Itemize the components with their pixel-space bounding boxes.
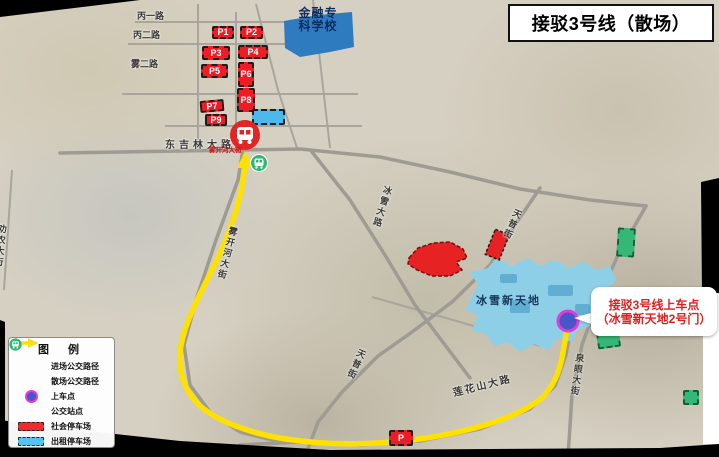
bus-stop-icon bbox=[250, 154, 268, 172]
page-title: 接驳3号线（散场） bbox=[508, 4, 714, 42]
legend-label: 进场公交路径 bbox=[51, 361, 99, 372]
road-wukaihe bbox=[184, 125, 285, 443]
blue-dashed-box-icon bbox=[15, 437, 47, 446]
legend-item-enter-route: 进场公交路径 bbox=[15, 359, 110, 373]
legend-item-taxi-parking: 出租停车场 bbox=[15, 434, 110, 448]
parking-p1: P1 bbox=[212, 26, 234, 39]
legend-label: 散场公交路径 bbox=[51, 376, 99, 387]
parking-p6: P6 bbox=[238, 62, 254, 87]
boarding-dot-icon bbox=[15, 390, 47, 403]
legend-label: 上车点 bbox=[51, 391, 75, 402]
social-parking-area bbox=[408, 242, 467, 276]
legend-item-social-parking: 社会停车场 bbox=[15, 419, 110, 433]
school-label: 金融专 科学校 bbox=[288, 7, 348, 33]
road-label-bingyi: 丙一路 bbox=[137, 9, 164, 22]
green-lot-east bbox=[616, 227, 636, 257]
parking-p-south: P bbox=[389, 430, 413, 446]
bus-stop-name: 雾开河大街 bbox=[209, 144, 242, 154]
parking-p3: P3 bbox=[202, 46, 230, 60]
road-dongjilin bbox=[60, 149, 646, 206]
school-label-line2: 科学校 bbox=[288, 20, 348, 33]
parking-p7: P7 bbox=[200, 99, 225, 113]
legend-label: 出租停车场 bbox=[51, 436, 91, 447]
legend-item-boarding: 上车点 bbox=[15, 389, 110, 403]
road-label-wuer: 雾二路 bbox=[131, 57, 158, 70]
parking-p9: P9 bbox=[205, 114, 227, 126]
legend-item-exit-route: 散场公交路径 bbox=[15, 374, 110, 388]
parking-p5: P5 bbox=[201, 64, 228, 78]
legend-label: 公交站点 bbox=[51, 406, 83, 417]
shuttle-map-page: 丙一路 丙二路 雾二路 东吉林大路 雾开河大街 冰雪大路 天普街 天普街 泉眼大… bbox=[0, 0, 719, 457]
legend-item-bus-stop: 公交站点 bbox=[15, 404, 110, 418]
road-label-binger: 丙二路 bbox=[133, 28, 160, 41]
boarding-callout: 接驳3号线上车点 （冰雪新天地2号门） bbox=[591, 287, 717, 336]
callout-line2: （冰雪新天地2号门） bbox=[597, 312, 712, 326]
legend: 图 例 进场公交路径 散场公交路径 上车点 公交站点 社会停车场 bbox=[8, 337, 115, 448]
green-lot-south bbox=[683, 390, 699, 405]
venue-label: 冰雪新天地 bbox=[476, 292, 541, 308]
legend-label: 社会停车场 bbox=[51, 421, 91, 432]
callout-line1: 接驳3号线上车点 bbox=[609, 298, 700, 312]
parking-p4: P4 bbox=[238, 45, 268, 59]
red-dashed-box-icon bbox=[15, 422, 47, 431]
parking-p2: P2 bbox=[240, 26, 263, 39]
